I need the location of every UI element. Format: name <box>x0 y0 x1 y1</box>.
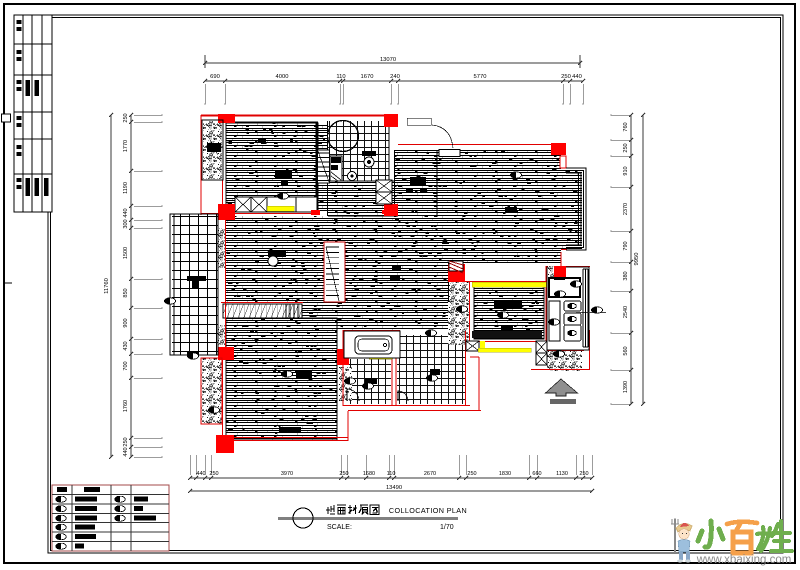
svg-text:2370: 2370 <box>623 203 629 215</box>
svg-text:250: 250 <box>561 74 571 80</box>
svg-text:2670: 2670 <box>424 471 436 477</box>
svg-text:2540: 2540 <box>623 306 629 318</box>
svg-text:1500: 1500 <box>123 247 129 259</box>
svg-text:910: 910 <box>623 166 629 175</box>
svg-text:250: 250 <box>123 113 129 122</box>
svg-text:3970: 3970 <box>281 471 293 477</box>
svg-text:1390: 1390 <box>623 381 629 393</box>
svg-text:250: 250 <box>339 471 348 477</box>
svg-text:13490: 13490 <box>386 485 402 491</box>
svg-text:COLLOCATION PLAN: COLLOCATION PLAN <box>389 506 467 515</box>
svg-text:1680: 1680 <box>363 471 375 477</box>
svg-text:250: 250 <box>623 143 629 152</box>
svg-text:440: 440 <box>196 471 205 477</box>
svg-text:1130: 1130 <box>556 471 568 477</box>
svg-text:250: 250 <box>467 471 476 477</box>
svg-text:250: 250 <box>579 471 588 477</box>
svg-text:9950: 9950 <box>634 253 640 266</box>
svg-text:1190: 1190 <box>123 182 129 194</box>
svg-text:790: 790 <box>623 241 629 250</box>
svg-text:440: 440 <box>123 208 129 217</box>
svg-text:1670: 1670 <box>361 74 374 80</box>
svg-text:250: 250 <box>123 437 129 446</box>
svg-text:700: 700 <box>123 361 129 370</box>
svg-text:690: 690 <box>210 74 220 80</box>
svg-text:13070: 13070 <box>380 57 396 63</box>
svg-text:850: 850 <box>123 288 129 297</box>
svg-text:1770: 1770 <box>123 140 129 152</box>
svg-text:SCALE:: SCALE: <box>327 524 352 531</box>
svg-text:1760: 1760 <box>123 400 129 412</box>
svg-text:4000: 4000 <box>276 74 289 80</box>
svg-text:300: 300 <box>123 219 129 228</box>
svg-text:5770: 5770 <box>474 74 487 80</box>
svg-text:560: 560 <box>623 346 629 355</box>
svg-text:11760: 11760 <box>104 278 110 294</box>
svg-text:110: 110 <box>387 471 396 477</box>
svg-text:660: 660 <box>532 471 541 477</box>
svg-text:900: 900 <box>123 318 129 327</box>
svg-text:110: 110 <box>336 74 345 80</box>
svg-text:240: 240 <box>390 74 400 80</box>
svg-text:1830: 1830 <box>499 471 511 477</box>
svg-text:1/70: 1/70 <box>440 524 454 531</box>
svg-text:www.xbaixing.com: www.xbaixing.com <box>696 554 792 566</box>
svg-text:440: 440 <box>572 74 582 80</box>
svg-text:380: 380 <box>623 271 629 280</box>
svg-text:430: 430 <box>123 341 129 350</box>
svg-text:760: 760 <box>623 122 629 131</box>
svg-text:250: 250 <box>209 471 218 477</box>
svg-text:440: 440 <box>123 447 129 456</box>
